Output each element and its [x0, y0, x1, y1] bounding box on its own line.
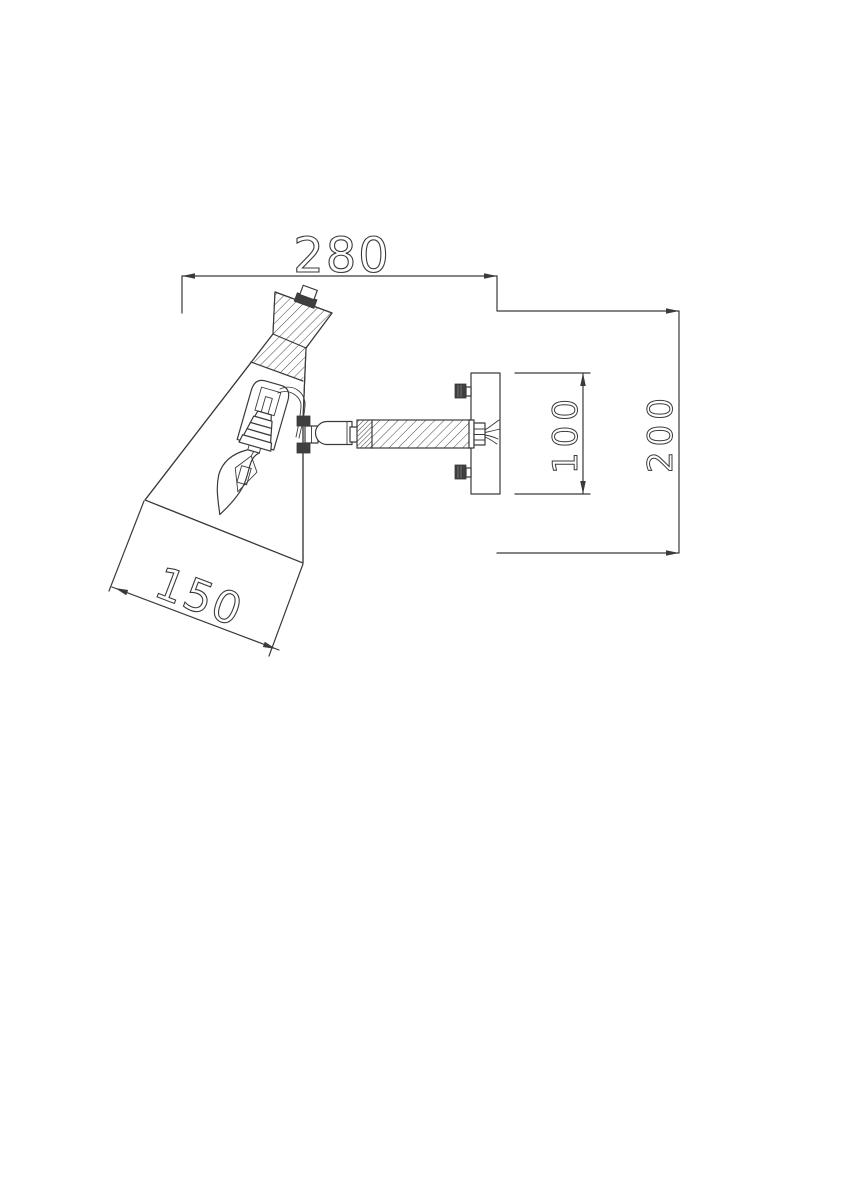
- screw-bottom-collar: [466, 468, 471, 477]
- arm-washer: [469, 420, 474, 448]
- joint-cylinder: [316, 422, 353, 445]
- arm-end-cap: [357, 420, 373, 448]
- technical-drawing-canvas: 280 200 100: [0, 0, 849, 1200]
- arm-nut: [474, 423, 485, 445]
- screw-top-head: [455, 384, 466, 398]
- dim-label-top-width: 280: [293, 228, 391, 284]
- page-background: [0, 0, 849, 1200]
- shade-clamp-bottom: [297, 443, 310, 453]
- screw-bottom-head: [455, 465, 466, 479]
- dim-label-backplate-height: 100: [546, 394, 586, 474]
- dim-label-overall-height: 200: [641, 393, 681, 473]
- arm-tube: [372, 420, 471, 448]
- shade-clamp-top: [297, 416, 310, 426]
- screw-top-collar: [466, 387, 471, 396]
- lamp-drawing-svg: 280 200 100: [0, 0, 849, 1200]
